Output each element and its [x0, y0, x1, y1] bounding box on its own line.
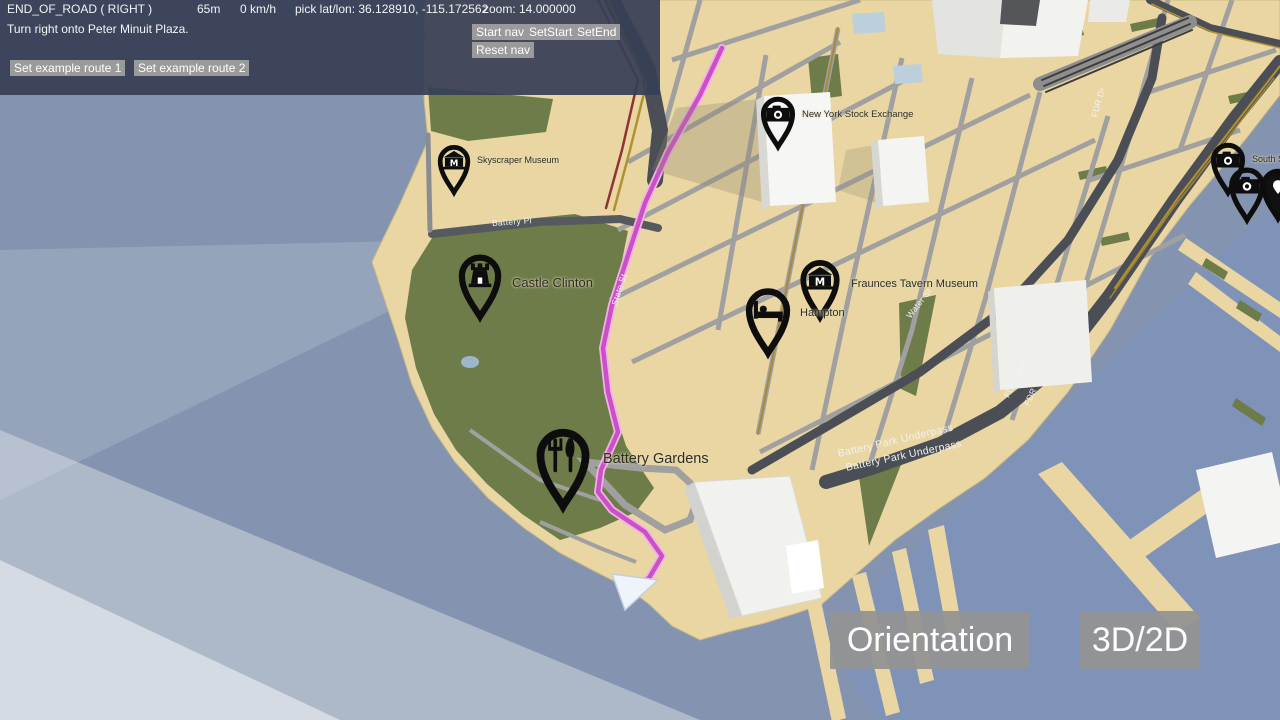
nav-speed: 0 km/h [240, 2, 276, 16]
set-end-button[interactable]: SetEnd [573, 24, 620, 40]
poi-label: Hampton [800, 307, 845, 319]
poi-pin-hampton[interactable]: Hampton [742, 284, 794, 358]
poi-label: Fraunces Tavern Museum [851, 278, 978, 290]
poi-pin-nyse[interactable]: New York Stock Exchange [758, 92, 798, 152]
museum-icon: M [440, 147, 468, 192]
nav-hud-panel: END_OF_ROAD ( RIGHT ) 65m 0 km/h pick la… [0, 0, 660, 95]
set-start-button[interactable]: SetStart [525, 24, 576, 40]
poi-pin-edge-partial[interactable] [1258, 162, 1280, 226]
poi-label: Skyscraper Museum [477, 155, 559, 165]
poi-label: Castle Clinton [512, 275, 593, 290]
svg-text:M: M [815, 276, 825, 288]
orientation-button[interactable]: Orientation [830, 611, 1030, 669]
nav-distance: 65m [197, 2, 220, 16]
poi-label: Battery Gardens [603, 451, 709, 467]
3d-2d-toggle-button[interactable]: 3D/2D [1080, 611, 1200, 669]
example-route-1-button[interactable]: Set example route 1 [10, 60, 125, 76]
reset-nav-button[interactable]: Reset nav [472, 42, 534, 58]
camera-icon [763, 99, 792, 146]
pick-latlon: pick lat/lon: 36.128910, -115.172562 [295, 2, 488, 16]
poi-pin-battery-gardens[interactable]: Battery Gardens [532, 424, 594, 512]
poi-pin-castle-clinton[interactable]: Castle Clinton [455, 252, 505, 320]
poi-pin-skyscraper-museum[interactable]: M Skyscraper Museum [435, 140, 473, 198]
zoom-level: zoom: 14.000000 [483, 2, 576, 16]
map-app: { "header": { "status": "END_OF_ROAD ( R… [0, 0, 1280, 720]
restaurant-icon [540, 433, 585, 506]
nav-instruction: Turn right onto Peter Minuit Plaza. [7, 22, 189, 36]
lodging-icon [749, 291, 787, 352]
nav-status-text: END_OF_ROAD ( RIGHT ) [7, 2, 152, 16]
start-nav-button[interactable]: Start nav [472, 24, 528, 40]
example-route-2-button[interactable]: Set example route 2 [134, 60, 249, 76]
poi-label: New York Stock Exchange [802, 109, 913, 120]
svg-text:M: M [450, 159, 459, 169]
marker-icon [1263, 171, 1280, 218]
castle-icon [462, 258, 498, 317]
